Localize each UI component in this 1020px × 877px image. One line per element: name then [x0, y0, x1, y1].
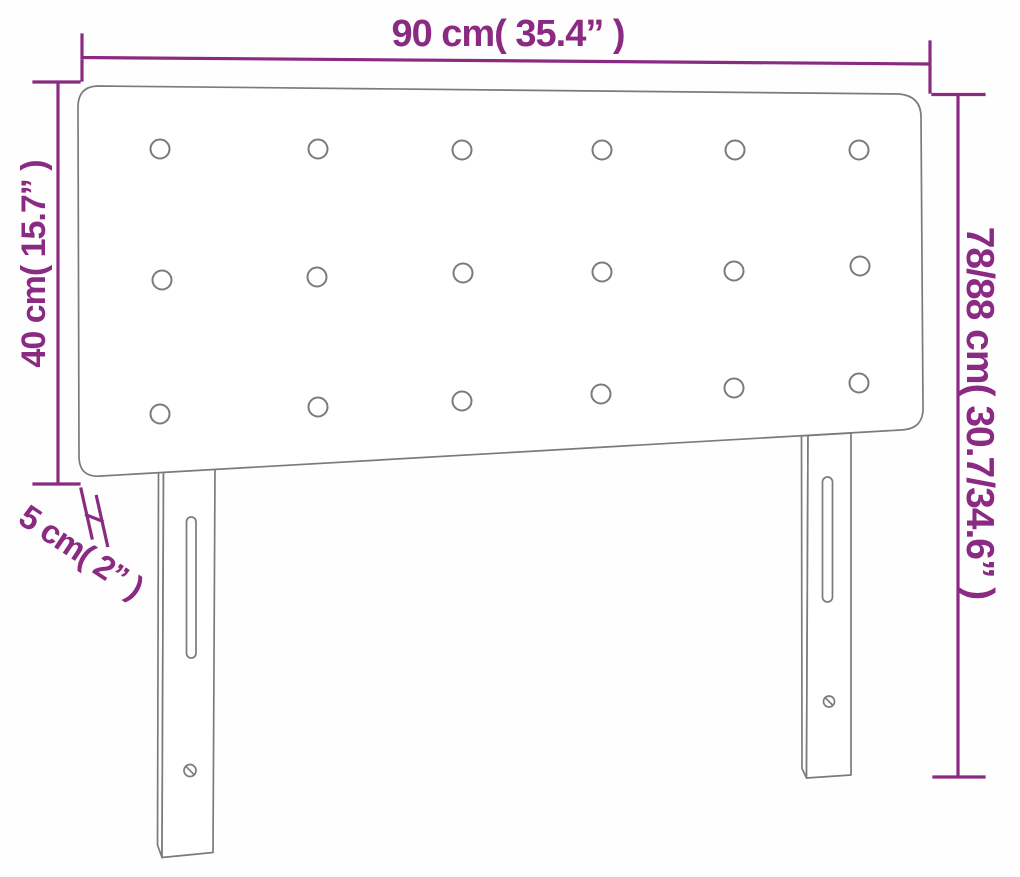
tufting-button	[309, 140, 328, 159]
right-leg-slot	[823, 477, 833, 602]
tufting-button	[453, 141, 472, 160]
panel-height-dimension: 40 cm( 15.7” )	[15, 82, 79, 484]
right-leg	[802, 433, 852, 778]
tufting-button	[850, 374, 869, 393]
headboard-dimension-diagram: 90 cm( 35.4” ) 40 cm( 15.7” ) 78/88 cm( …	[0, 0, 1020, 877]
tufting-button	[593, 141, 612, 160]
left-leg	[158, 469, 216, 858]
width-dimension-label: 90 cm( 35.4” )	[391, 13, 624, 55]
thickness-dimension-label: 5 cm( 2” )	[13, 497, 150, 605]
left-leg-slot	[187, 517, 197, 658]
tufting-button	[153, 271, 172, 290]
width-dimension: 90 cm( 35.4” )	[82, 13, 930, 92]
tufting-button	[453, 392, 472, 411]
tufting-button	[850, 141, 869, 160]
total-height-dimension: 78/88 cm( 30.7/34.6” )	[933, 95, 1001, 778]
total-height-dimension-label: 78/88 cm( 30.7/34.6” )	[958, 227, 1001, 600]
tufting-button	[726, 141, 745, 160]
tufting-button	[725, 262, 744, 281]
tufting-button	[725, 379, 744, 398]
panel-height-dimension-label: 40 cm( 15.7” )	[15, 160, 53, 367]
thickness-dimension: 5 cm( 2” )	[13, 489, 150, 606]
tufting-button	[454, 264, 473, 283]
headboard-outline	[78, 86, 923, 476]
tufting-button	[151, 405, 170, 424]
tufting-button	[309, 398, 328, 417]
tufting-button	[592, 385, 611, 404]
tufting-button	[851, 257, 870, 276]
tufting-button	[151, 140, 170, 159]
tufting-button	[593, 263, 612, 282]
tufting-button	[308, 268, 327, 287]
